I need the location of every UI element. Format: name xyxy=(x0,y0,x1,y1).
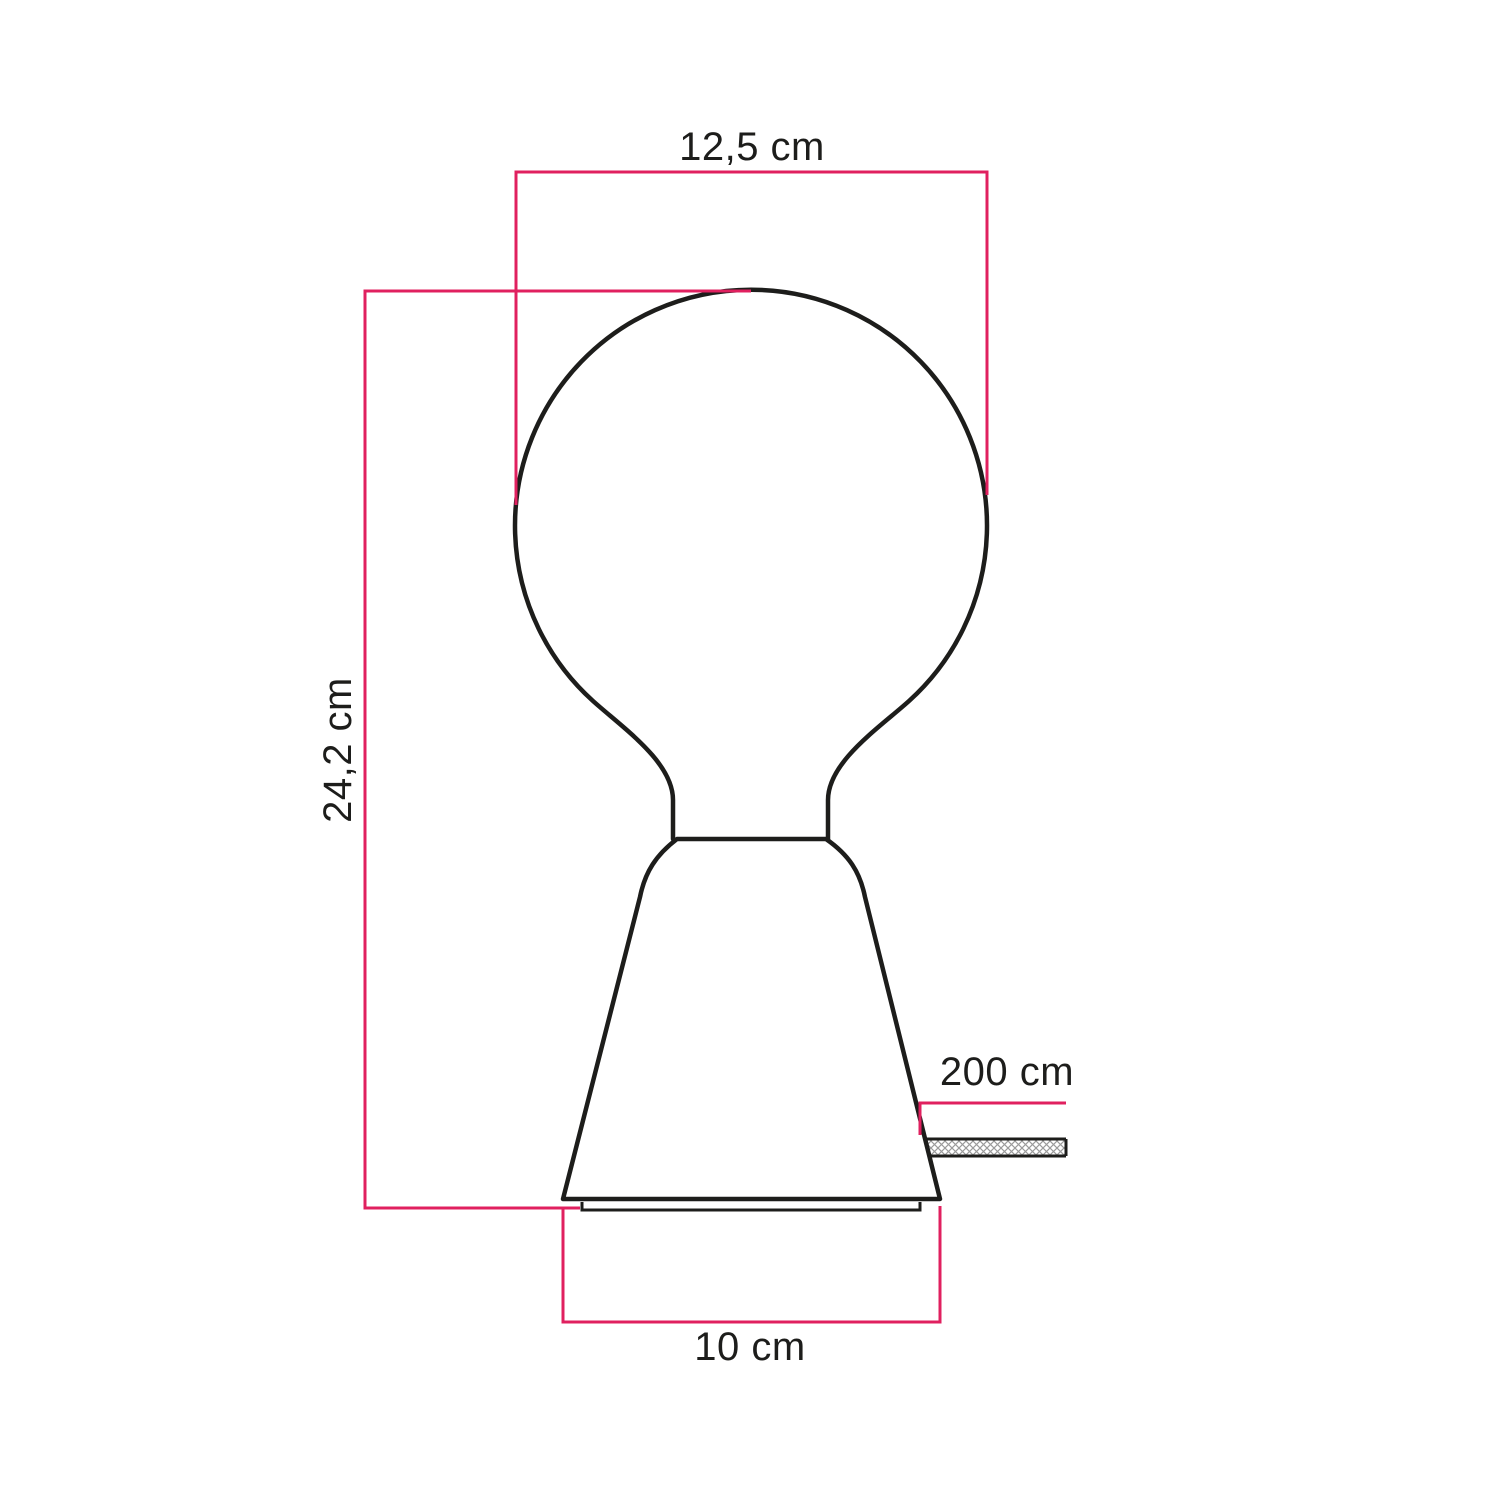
globe-bulb-outline xyxy=(515,290,987,839)
cable-hatch xyxy=(912,1139,1066,1156)
base-plate-line xyxy=(582,1202,920,1210)
diagram-canvas: 12,5 cm 24,2 cm 200 cm 10 cm xyxy=(0,0,1500,1500)
total-height-label: 24,2 cm xyxy=(316,677,360,823)
base-width-label: 10 cm xyxy=(694,1325,805,1369)
dimension-diagram: 12,5 cm 24,2 cm 200 cm 10 cm xyxy=(0,0,1500,1500)
bulb-width-label: 12,5 cm xyxy=(679,125,825,169)
dim-line-base-width xyxy=(563,1206,940,1322)
cable-length-label: 200 cm xyxy=(940,1050,1074,1094)
dim-line-cable-length xyxy=(920,1103,1066,1135)
lamp-drawing xyxy=(515,290,987,1210)
lamp-base-outline xyxy=(563,839,940,1199)
power-cable xyxy=(912,1139,1066,1156)
dim-line-bulb-width xyxy=(516,172,987,505)
